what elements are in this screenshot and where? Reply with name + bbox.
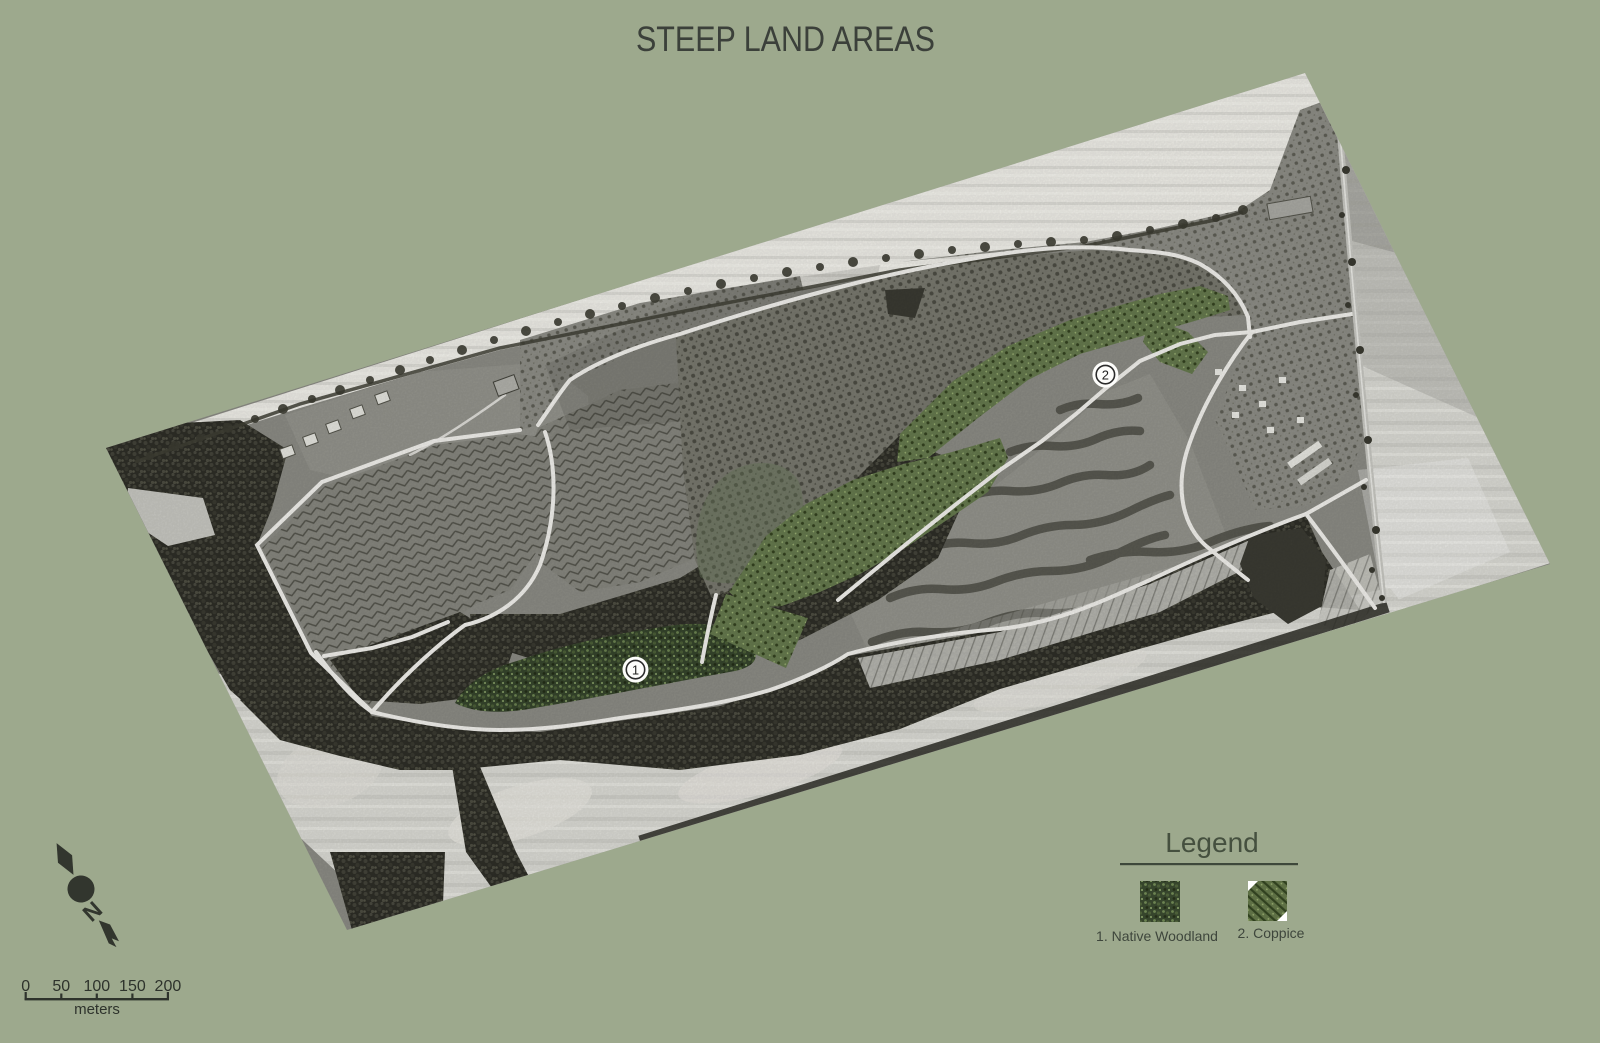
svg-text:2: 2 [1102, 368, 1109, 383]
svg-text:2. Coppice: 2. Coppice [1238, 925, 1305, 941]
svg-text:1. Native Woodland: 1. Native Woodland [1096, 928, 1218, 944]
svg-text:100: 100 [83, 978, 110, 995]
svg-text:Legend: Legend [1165, 827, 1258, 858]
svg-text:150: 150 [119, 978, 146, 995]
svg-text:STEEP LAND AREAS: STEEP LAND AREAS [636, 20, 935, 59]
svg-text:50: 50 [52, 978, 70, 995]
svg-text:meters: meters [74, 1001, 120, 1018]
svg-text:1: 1 [632, 663, 639, 678]
